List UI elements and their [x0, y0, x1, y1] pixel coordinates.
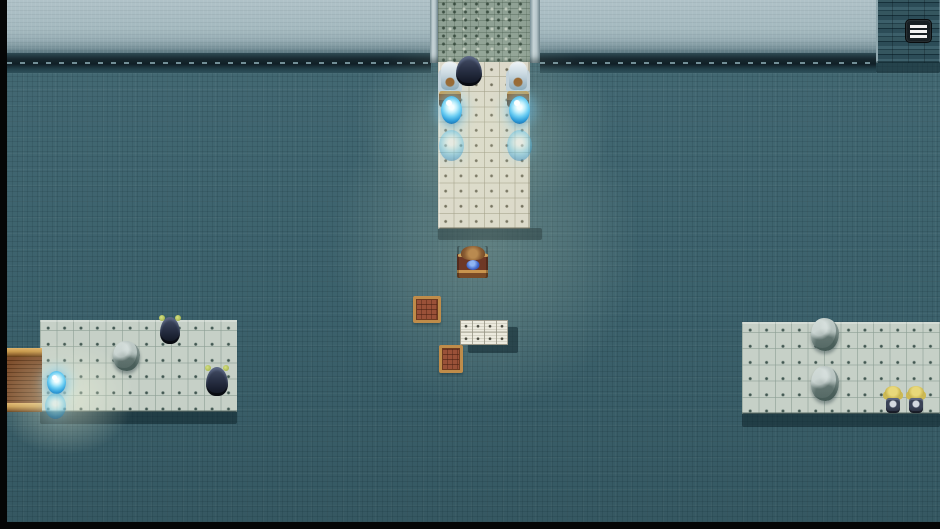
- hamburger-menu-icon: [910, 25, 927, 38]
- game-viewport: [0, 0, 940, 529]
- wall-ledge-left: [7, 53, 431, 73]
- imp-npc-upper[interactable]: [160, 317, 180, 344]
- tower-base-shadow: [876, 61, 940, 73]
- wall-upper-left: [7, 0, 431, 55]
- hooded-npc-entrance[interactable]: [456, 56, 482, 86]
- wall-upper-right: [540, 0, 876, 55]
- menu-button[interactable]: [905, 19, 932, 43]
- letterbox-left: [0, 0, 7, 529]
- save-crystal-dock[interactable]: [47, 371, 66, 394]
- stone-figure-right-upper[interactable]: [811, 318, 839, 351]
- wooden-crate-lower[interactable]: [439, 345, 463, 373]
- right-platform-shadow: [742, 413, 940, 427]
- letterbox-bottom: [0, 522, 940, 529]
- wooden-crate-upper[interactable]: [413, 296, 441, 323]
- stone-figure-left-platform[interactable]: [113, 341, 140, 371]
- blond-npc-left[interactable]: [884, 386, 902, 413]
- stone-figure-right-lower[interactable]: [811, 366, 839, 401]
- faded-crystal-entrance-right[interactable]: [507, 130, 532, 161]
- white-tile-block[interactable]: [460, 320, 508, 345]
- seated-character-desk[interactable]: [457, 246, 488, 278]
- save-crystal-entrance-right[interactable]: [509, 96, 530, 124]
- save-crystal-entrance-left[interactable]: [441, 96, 462, 124]
- imp-npc-lower[interactable]: [206, 367, 228, 396]
- faded-crystal-dock[interactable]: [45, 393, 66, 419]
- faded-crystal-entrance-left[interactable]: [439, 130, 464, 161]
- center-glow-main: [330, 80, 640, 410]
- blond-npc-right[interactable]: [906, 386, 926, 413]
